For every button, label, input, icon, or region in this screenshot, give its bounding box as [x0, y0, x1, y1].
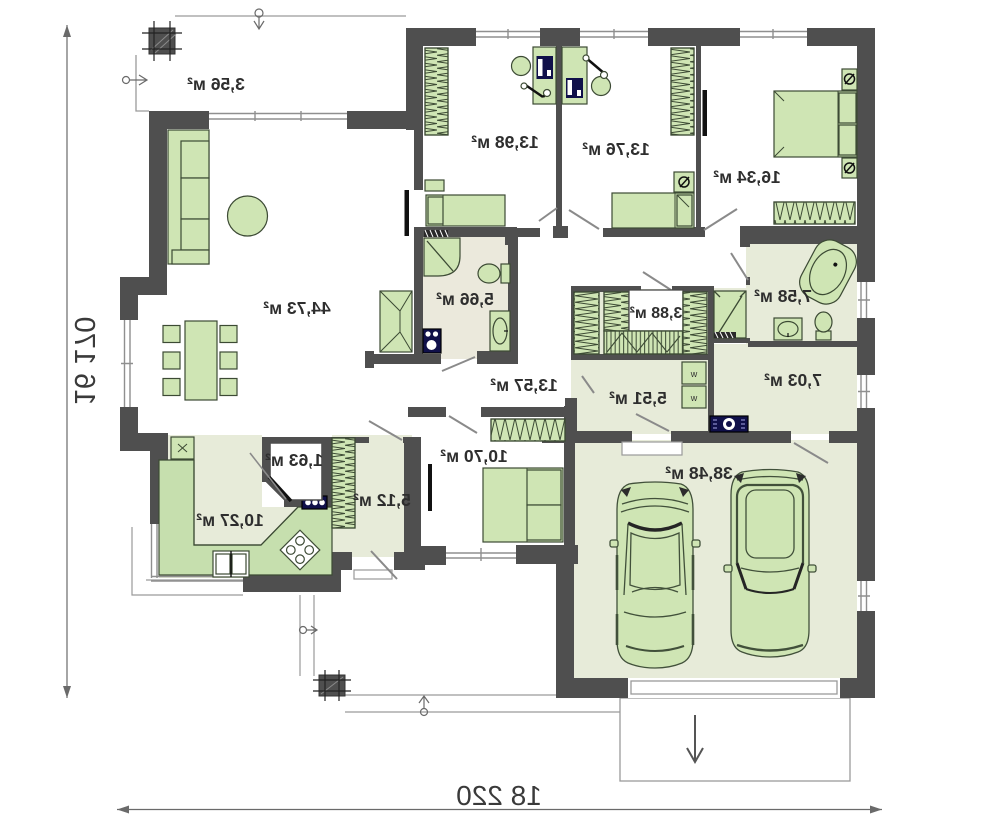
svg-text:44,73 м²: 44,73 м²	[263, 298, 331, 318]
svg-text:38,48 м²: 38,48 м²	[665, 463, 733, 483]
svg-text:13,57 м²: 13,57 м²	[490, 375, 558, 395]
svg-text:3,88 м²: 3,88 м²	[630, 305, 683, 322]
svg-text:16,34 м²: 16,34 м²	[713, 167, 781, 187]
svg-text:5,51 м²: 5,51 м²	[609, 388, 667, 408]
svg-text:w: w	[690, 393, 698, 403]
svg-text:3,56 м²: 3,56 м²	[187, 74, 245, 94]
svg-text:10,70 м²: 10,70 м²	[440, 446, 508, 466]
svg-text:5,66 м²: 5,66 м²	[436, 289, 494, 309]
svg-text:18 220: 18 220	[456, 780, 542, 811]
svg-text:10,27 м²: 10,27 м²	[196, 510, 264, 530]
svg-text:5,12 м²: 5,12 м²	[353, 490, 411, 510]
svg-text:7,58 м²: 7,58 м²	[754, 286, 812, 306]
svg-text:1,63 м²: 1,63 м²	[265, 450, 323, 470]
svg-text:13,98 м²: 13,98 м²	[471, 132, 539, 152]
svg-text:13,76 м²: 13,76 м²	[582, 139, 650, 159]
svg-text:16 170: 16 170	[68, 317, 100, 406]
svg-text:w: w	[690, 369, 698, 379]
svg-text:7,03 м²: 7,03 м²	[764, 370, 822, 390]
